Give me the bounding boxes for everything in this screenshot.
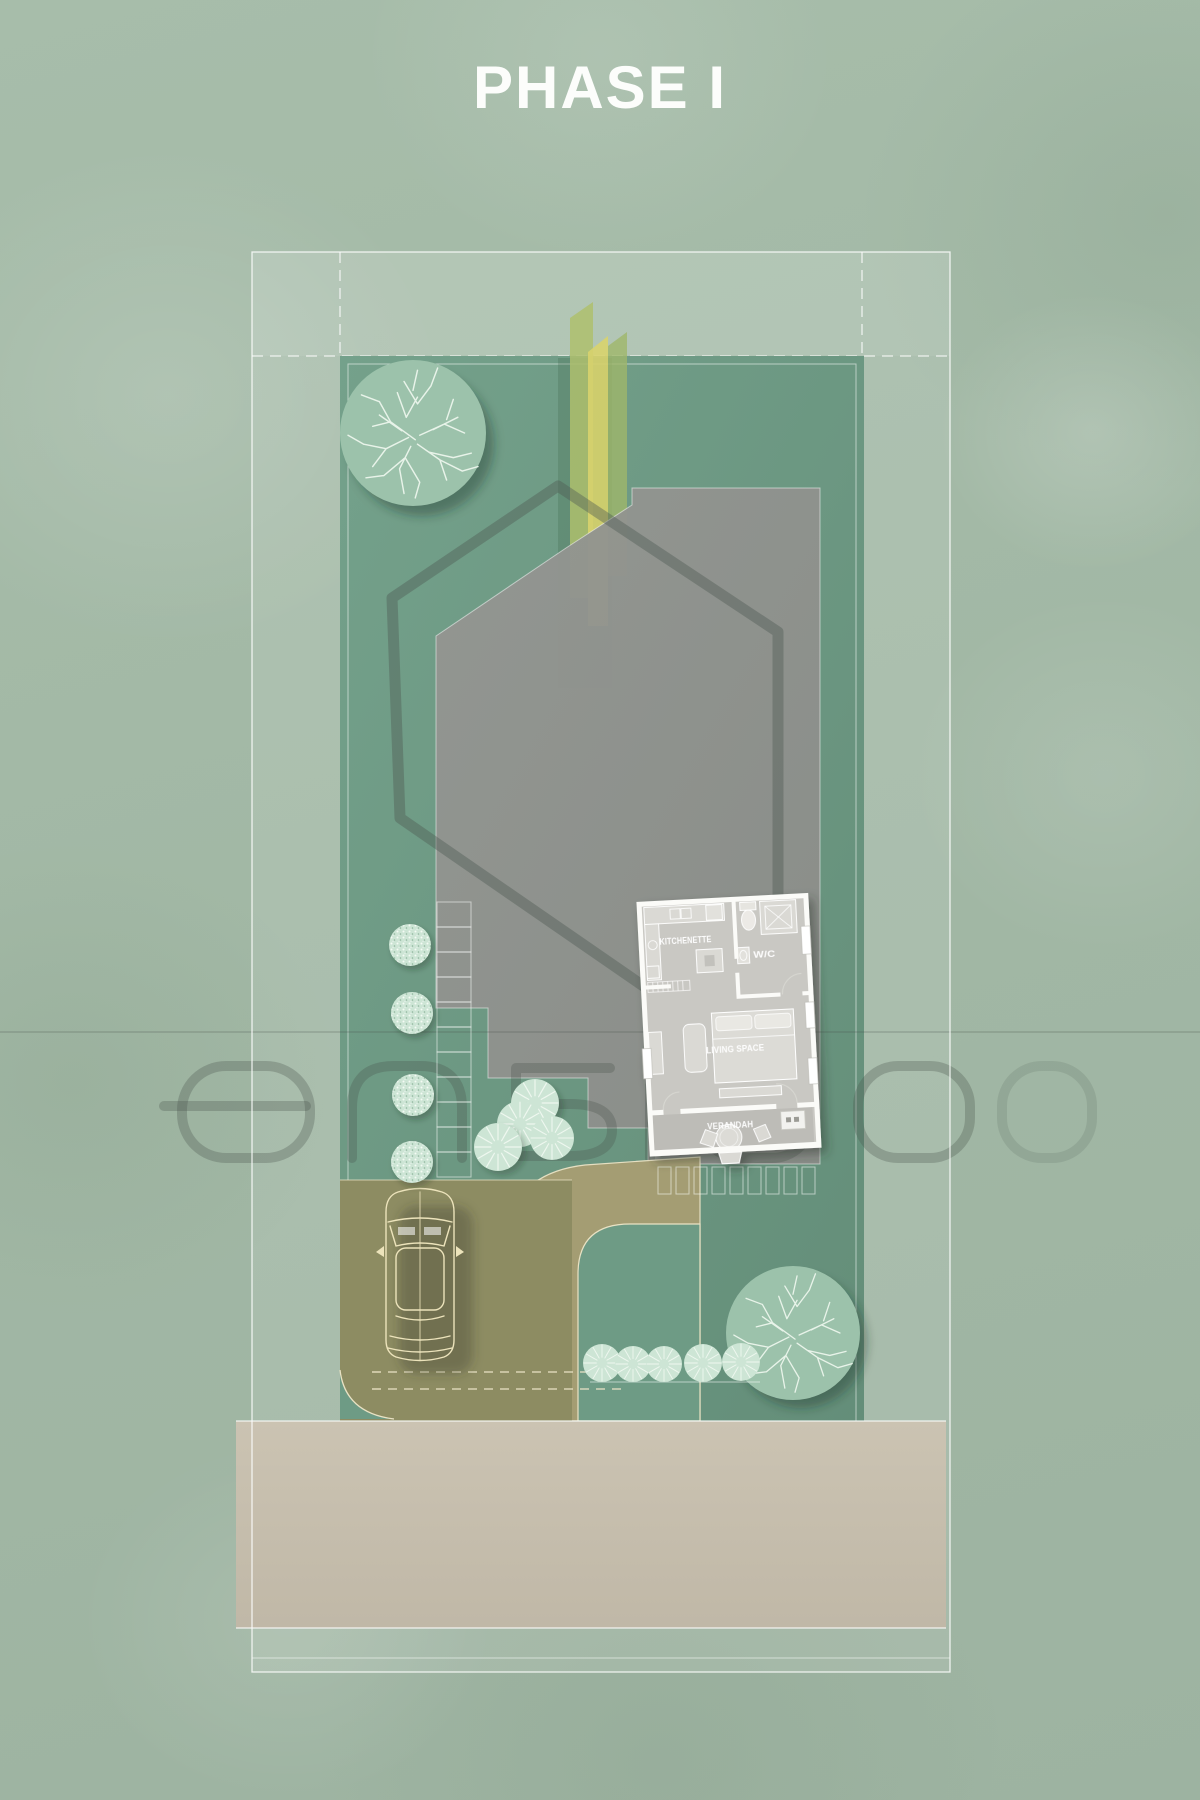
window [805,1002,815,1028]
page-title: PHASE I [0,58,1200,118]
house-plan: KITCHENETTE W/C LIVING SPACE VERANDAH [634,893,822,1168]
window [642,1048,653,1078]
shrub-row-bottom [583,1343,760,1382]
equipment-box [781,1110,806,1129]
front-setback-band [252,252,950,356]
window [808,1058,818,1084]
window [801,926,811,954]
lawn-corner-right [578,1224,700,1421]
site-plan-page: KITCHENETTE W/C LIVING SPACE VERANDAH [0,0,1200,1800]
site-plan-drawing: KITCHENETTE W/C LIVING SPACE VERANDAH [0,0,1200,1800]
road [236,1421,946,1628]
wc-label: W/C [753,949,776,961]
